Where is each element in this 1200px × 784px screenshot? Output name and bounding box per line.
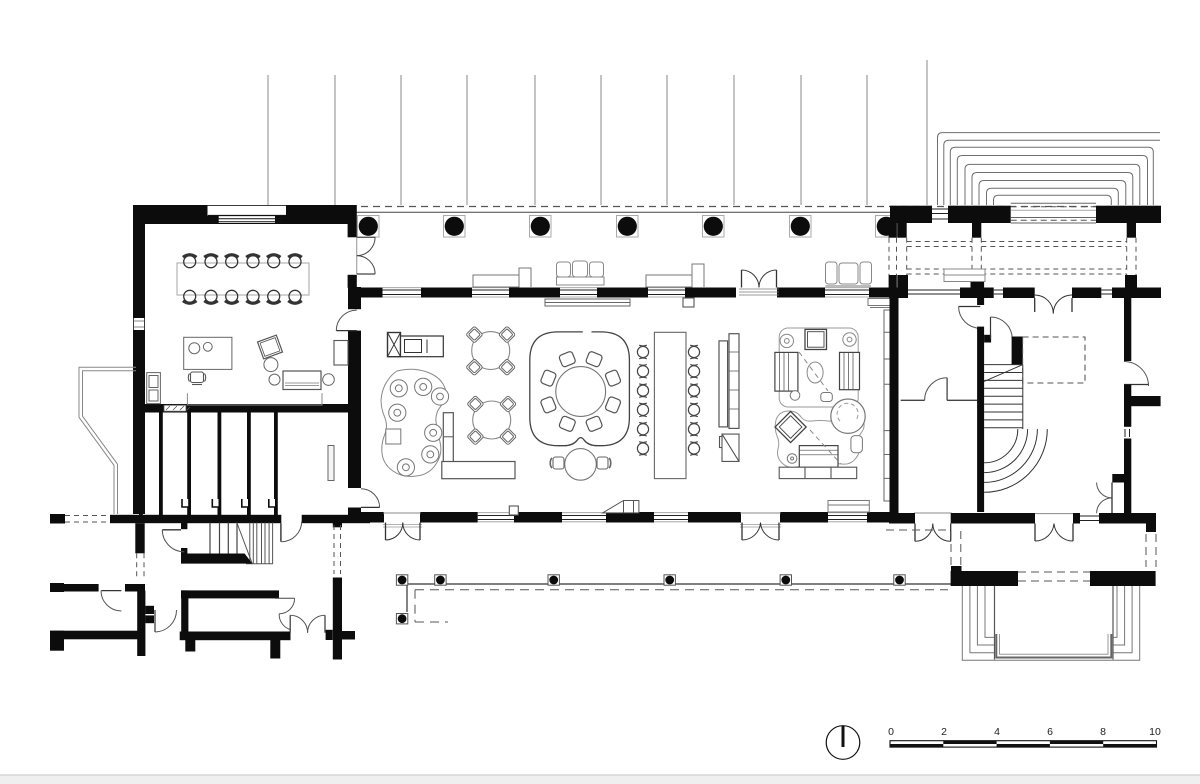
svg-text:8: 8 xyxy=(1100,726,1106,738)
svg-text:6: 6 xyxy=(1047,726,1053,738)
svg-text:10: 10 xyxy=(1149,726,1161,738)
svg-text:0: 0 xyxy=(888,726,894,738)
svg-text:2: 2 xyxy=(941,726,947,738)
svg-text:4: 4 xyxy=(994,726,1000,738)
